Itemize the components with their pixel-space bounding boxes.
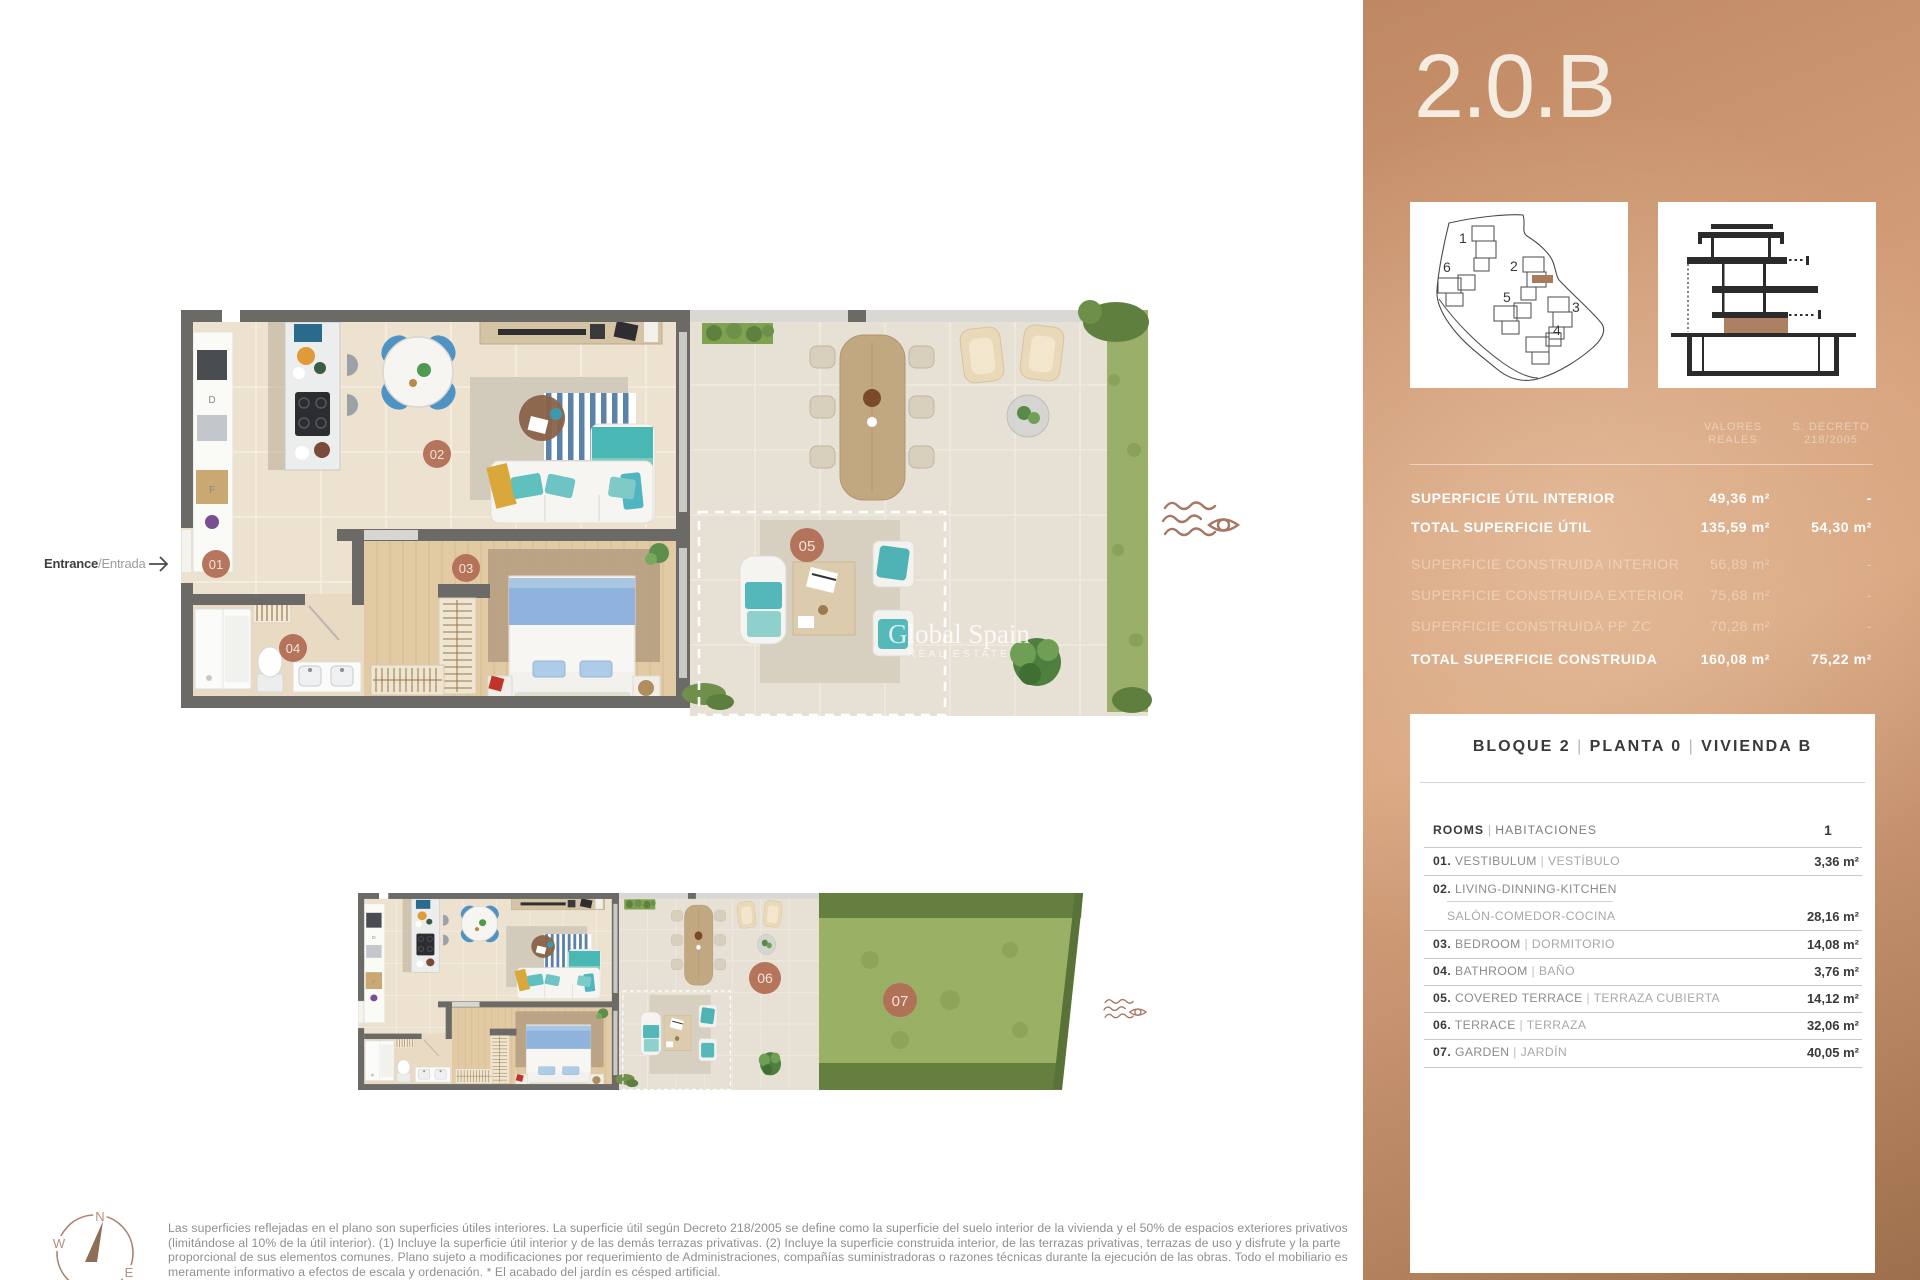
svg-text:3: 3 [1572, 299, 1580, 315]
svg-text:06: 06 [757, 970, 773, 986]
svg-text:07: 07 [892, 993, 909, 1010]
svg-text:2: 2 [1510, 258, 1518, 274]
svg-text:1: 1 [1459, 230, 1467, 246]
svg-text:03: 03 [459, 561, 473, 576]
svg-text:E: E [125, 1265, 134, 1280]
svg-text:01: 01 [209, 557, 223, 572]
svg-text:05: 05 [799, 538, 816, 555]
svg-text:5: 5 [1503, 289, 1511, 305]
svg-text:6: 6 [1443, 259, 1451, 275]
svg-text:W: W [53, 1236, 66, 1251]
svg-text:02: 02 [430, 447, 444, 462]
svg-text:N: N [95, 1209, 104, 1224]
svg-text:04: 04 [286, 641, 300, 656]
svg-text:4: 4 [1553, 322, 1561, 338]
